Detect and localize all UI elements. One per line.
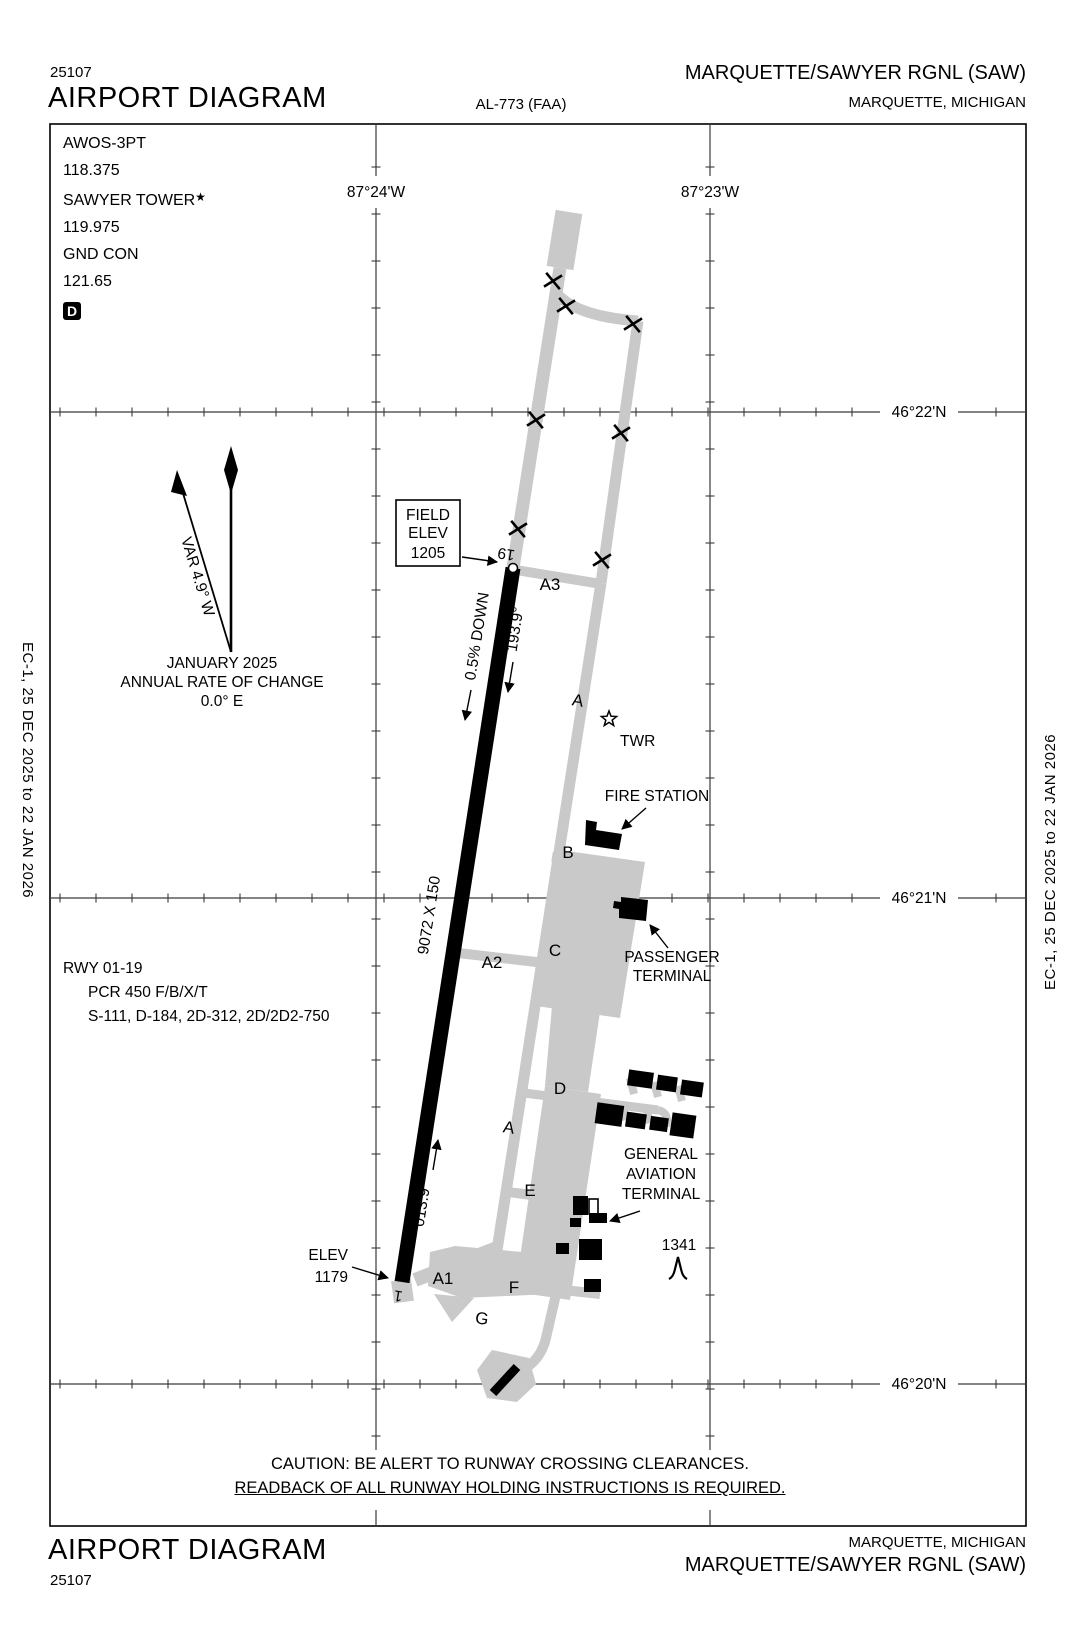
closed-runway-strip	[513, 268, 560, 568]
taxiway-b-label: B	[562, 843, 573, 862]
taxiway-g-label: G	[474, 1308, 490, 1329]
north-arrows: VAR 4.9° W	[171, 446, 238, 652]
field-elev-line2: ELEV	[408, 525, 448, 542]
airport-map: 87°24'W 87°23'W 46°22'N 46°21'N 46°20'N	[0, 0, 1076, 1650]
fire-station-building	[585, 820, 622, 850]
obstacle-elevation: 1341	[662, 1237, 696, 1254]
magnetic-variation: VAR 4.9° W	[177, 535, 217, 618]
lat-label-46-22: 46°22'N	[892, 404, 947, 421]
ga-terminal-label2: AVIATION	[626, 1166, 696, 1183]
runway-slope: 0.5% DOWN	[462, 591, 493, 681]
map-border	[50, 124, 1026, 1526]
ga-terminal-label1: GENERAL	[624, 1146, 698, 1163]
lon-label-87-24: 87°24'W	[347, 184, 406, 201]
closed-taxiway	[601, 321, 638, 583]
hangar	[680, 1080, 704, 1098]
field-elev-line1: FIELD	[406, 507, 450, 524]
ga-building	[556, 1243, 569, 1254]
magnetic-north-arrow-icon	[171, 470, 187, 496]
rwy01-elev-label: ELEV	[308, 1247, 348, 1264]
ga-building	[589, 1213, 607, 1223]
hangar	[649, 1116, 669, 1132]
fire-station-arrow-icon	[622, 808, 646, 829]
taxiway-a1-label: A1	[433, 1269, 454, 1288]
ga-terminal-label3: TERMINAL	[622, 1186, 701, 1203]
rwy01-elev-value: 1179	[315, 1269, 348, 1286]
chart-code-bottom: 25107	[50, 1572, 92, 1589]
ga-terminal-building	[579, 1239, 602, 1260]
airport-city-bottom: MARQUETTE, MICHIGAN	[526, 1534, 1026, 1551]
caution-note: CAUTION: BE ALERT TO RUNWAY CROSSING CLE…	[150, 1452, 870, 1500]
lat-label-46-21: 46°21'N	[892, 890, 947, 907]
heading-01-arrow-icon	[433, 1140, 438, 1170]
taxiway-f-label: F	[509, 1278, 519, 1297]
annual-rate-label: ANNUAL RATE OF CHANGE	[120, 674, 323, 691]
hangar	[625, 1112, 647, 1130]
runway-dimensions: 9072 X 150	[415, 874, 444, 955]
lon-label-87-23: 87°23'W	[681, 184, 740, 201]
hangar	[656, 1075, 678, 1093]
runway-pcr: PCR 450 F/B/X/T	[88, 984, 208, 1001]
hangar	[669, 1112, 696, 1138]
passenger-terminal-arrow-icon	[650, 925, 668, 948]
pavement	[401, 212, 682, 1402]
ga-building	[573, 1196, 588, 1215]
caution-line1: CAUTION: BE ALERT TO RUNWAY CROSSING CLE…	[150, 1452, 870, 1476]
obstacle-icon	[669, 1257, 687, 1279]
passenger-terminal-label1: PASSENGER	[624, 949, 719, 966]
field-elev-value: 1205	[411, 545, 445, 562]
runway-19-threshold-dot	[509, 564, 518, 573]
slope-direction-arrow-icon	[465, 690, 471, 720]
annual-rate-value: 0.0° E	[201, 693, 243, 710]
closed-runway-stub	[560, 212, 569, 268]
lat-label-46-20: 46°20'N	[892, 1376, 947, 1393]
passenger-terminal-label2: TERMINAL	[633, 968, 712, 985]
caution-line2: READBACK OF ALL RUNWAY HOLDING INSTRUCTI…	[150, 1476, 870, 1500]
ga-building-outline	[589, 1199, 598, 1214]
rwy01-elev-arrow-icon	[352, 1267, 388, 1278]
hangar	[595, 1102, 625, 1127]
ga-terminal-arrow-icon	[610, 1211, 640, 1221]
runway-designation: RWY 01-19	[63, 960, 143, 977]
taxiway-c-label: C	[549, 941, 561, 960]
fire-station-label: FIRE STATION	[605, 788, 709, 805]
graticule-lines	[50, 124, 1026, 1526]
variation-date: JANUARY 2025	[167, 655, 278, 672]
field-elev-arrow-icon	[462, 557, 497, 562]
page-title-bottom: AIRPORT DIAGRAM	[48, 1534, 327, 1567]
ga-building	[570, 1218, 581, 1227]
airport-diagram-page: 25107 AIRPORT DIAGRAM AL-773 (FAA) MARQU…	[0, 0, 1076, 1650]
taxiway-a3-label: A3	[540, 575, 561, 594]
tower-star-icon	[601, 711, 616, 726]
ga-building	[584, 1279, 601, 1292]
airport-name-bottom: MARQUETTE/SAWYER RGNL (SAW)	[526, 1554, 1026, 1577]
true-north-arrow-icon	[224, 446, 238, 494]
runway-strength: S-111, D-184, 2D-312, 2D/2D2-750	[88, 1008, 330, 1025]
tower-label: TWR	[620, 733, 655, 750]
taxiway-d-label: D	[554, 1079, 566, 1098]
taxiway-a2-label: A2	[482, 953, 503, 972]
taxiway-e-label: E	[524, 1181, 535, 1200]
heading-19-arrow-icon	[508, 662, 513, 692]
runway-end-19-number: 19	[496, 544, 516, 563]
